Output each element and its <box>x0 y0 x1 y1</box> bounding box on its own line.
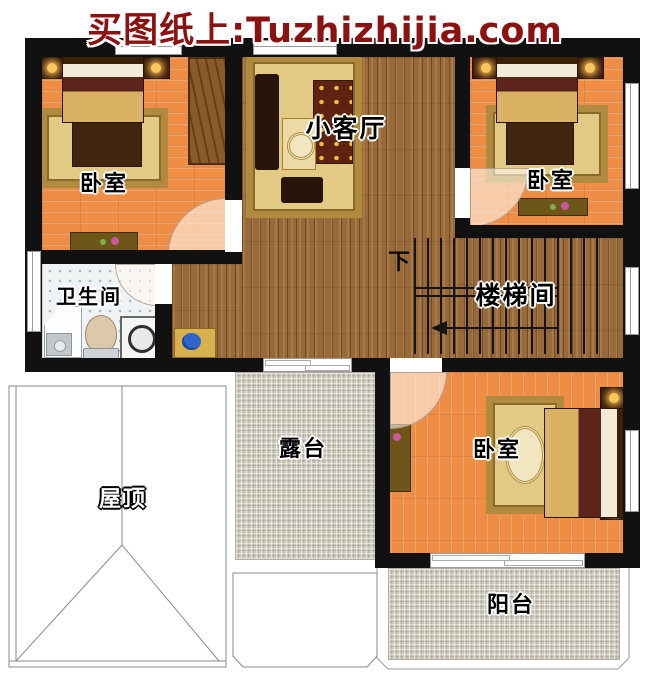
door-panel <box>432 555 510 561</box>
roof-outline <box>8 385 228 669</box>
sink <box>46 333 72 356</box>
wall-bedroom-tl-bottom <box>42 250 242 264</box>
hallway-mat <box>174 328 216 358</box>
bench <box>518 198 588 216</box>
roof-label: 屋顶 <box>99 481 147 513</box>
basin-icon <box>182 333 201 350</box>
door-bathroom <box>155 264 172 304</box>
bed-blanket <box>506 119 574 165</box>
terrace-floor <box>235 372 377 560</box>
balcony-label: 阳台 <box>487 587 535 619</box>
washer-drum-icon <box>128 325 156 353</box>
stair-direction-arrow <box>431 321 447 335</box>
window-stairwell <box>625 267 639 335</box>
small-roof-outline <box>232 572 379 669</box>
bedroom-bottom-label: 卧室 <box>473 432 521 464</box>
door-bedroom-tl <box>225 200 242 252</box>
nightstand <box>576 57 604 79</box>
terrace-sliding-door <box>263 358 352 372</box>
bathroom-label: 卫生间 <box>56 281 122 310</box>
bed <box>496 55 578 123</box>
nightstand <box>142 57 170 79</box>
lamp-icon <box>609 393 619 403</box>
flower-icon <box>393 433 401 441</box>
lamp-icon <box>151 63 161 73</box>
flower-icon <box>111 237 119 245</box>
bed <box>544 408 626 518</box>
living-room-label: 小客厅 <box>305 109 386 145</box>
wall-bathroom-right <box>155 304 172 358</box>
door-bedroom-bottom <box>390 358 442 372</box>
flower-icon <box>561 202 569 210</box>
lamp-icon <box>47 63 57 73</box>
lamp-icon <box>585 63 595 73</box>
sofa <box>255 74 279 170</box>
balcony-sliding-door <box>430 553 585 568</box>
door-panel <box>504 560 583 566</box>
window-bedroom-bottom <box>625 430 639 512</box>
bench <box>70 232 138 252</box>
terrace-label: 露台 <box>279 431 327 463</box>
door-panel <box>305 365 350 371</box>
bedroom-top-left-label: 卧室 <box>80 166 128 198</box>
armchair <box>281 177 323 203</box>
wall-terrace-right <box>375 372 390 568</box>
wall-bedroom-tr-bottom <box>455 225 640 238</box>
bed <box>62 55 144 123</box>
bedroom-top-right-label: 卧室 <box>527 163 575 195</box>
bed-blanket <box>72 119 142 167</box>
floorplan: 买图纸上:Tuzhizhijia.com <box>0 0 650 683</box>
stairs-down-label: 下 <box>388 244 410 276</box>
window-bathroom <box>27 251 41 332</box>
wardrobe <box>188 57 227 165</box>
lamp-icon <box>481 63 491 73</box>
window-bedroom-tr <box>625 83 639 189</box>
watermark-text: 买图纸上:Tuzhizhijia.com <box>0 2 650 53</box>
door-bedroom-tr <box>455 168 470 218</box>
stairwell-label: 楼梯间 <box>475 276 556 312</box>
